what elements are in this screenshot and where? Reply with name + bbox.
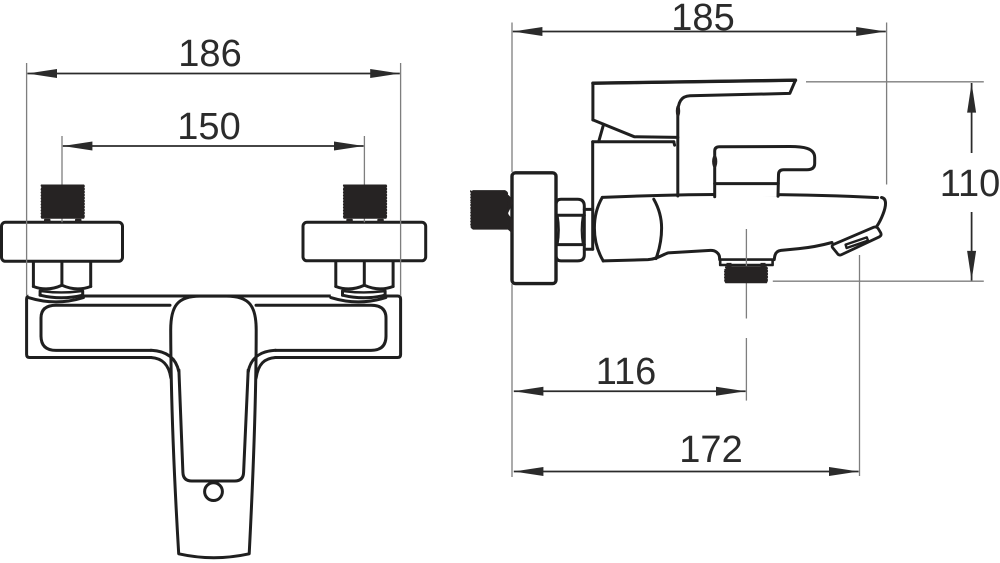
svg-text:186: 186 xyxy=(178,33,241,75)
svg-text:172: 172 xyxy=(679,429,742,471)
svg-text:110: 110 xyxy=(940,163,1000,205)
svg-text:185: 185 xyxy=(671,0,734,39)
svg-text:150: 150 xyxy=(177,106,240,148)
svg-text:116: 116 xyxy=(596,351,657,393)
